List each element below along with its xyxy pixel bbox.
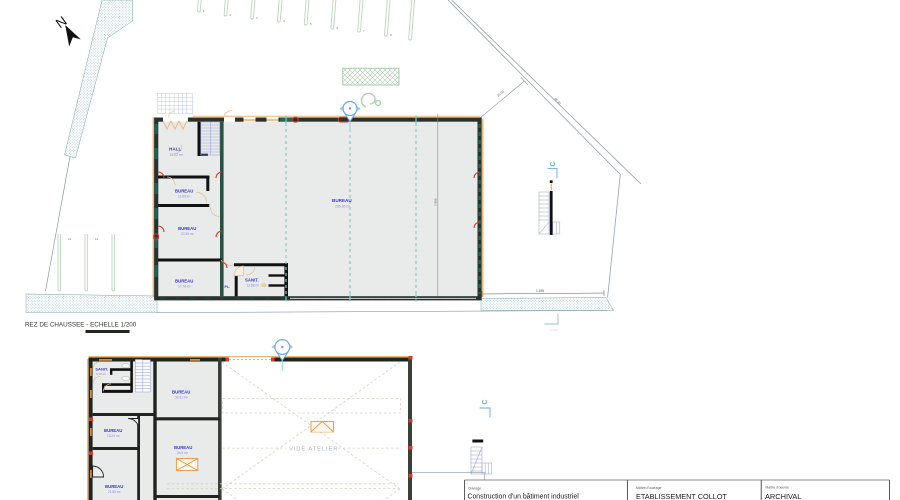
svg-text:19.22 m²: 19.22 m²: [170, 153, 184, 157]
svg-text:12: 12: [68, 237, 72, 241]
svg-text:PL.: PL.: [225, 285, 231, 289]
svg-text:ETABLISSEMENT COLLOT: ETABLISSEMENT COLLOT: [636, 492, 728, 500]
svg-text:1.195: 1.195: [536, 289, 544, 293]
svg-text:6.06 m²: 6.06 m²: [96, 372, 106, 376]
svg-text:12.88 m²: 12.88 m²: [247, 284, 260, 288]
svg-text:BUREAU: BUREAU: [175, 279, 193, 284]
svg-text:7.985: 7.985: [434, 198, 438, 206]
svg-text:Ouvrage: Ouvrage: [468, 487, 481, 491]
svg-text:235.36 m²: 235.36 m²: [335, 205, 351, 209]
svg-text:20.36 m²: 20.36 m²: [181, 232, 194, 236]
svg-text:VIDE ATELIER: VIDE ATELIER: [289, 447, 338, 453]
svg-text:11: 11: [95, 237, 98, 241]
svg-text:BUREAU: BUREAU: [104, 428, 122, 433]
svg-text:ARCHIVAL: ARCHIVAL: [765, 492, 801, 500]
svg-text:11.89 m²: 11.89 m²: [178, 195, 190, 199]
svg-text:21.85 m²: 21.85 m²: [108, 490, 121, 494]
svg-text:BUREAU: BUREAU: [172, 390, 190, 395]
svg-text:BUREAU: BUREAU: [105, 484, 123, 489]
svg-text:30.31 m²: 30.31 m²: [175, 396, 188, 400]
svg-text:BUREAU: BUREAU: [178, 226, 196, 231]
svg-text:1.125: 1.125: [550, 328, 558, 332]
svg-text:17.76 m²: 17.76 m²: [178, 285, 191, 289]
svg-text:SANIT.: SANIT.: [95, 367, 108, 372]
svg-text:C: C: [482, 399, 489, 404]
svg-text:13.24 m²: 13.24 m²: [107, 434, 120, 438]
svg-text:BUREAU: BUREAU: [175, 189, 193, 194]
svg-text:REZ DE CHAUSSEE - ECHELLE 1/20: REZ DE CHAUSSEE - ECHELLE 1/200: [25, 322, 137, 329]
svg-text:34.9 m²: 34.9 m²: [177, 451, 188, 455]
svg-text:HALL: HALL: [169, 147, 181, 152]
svg-text:BUREAU: BUREAU: [174, 445, 192, 450]
svg-text:C: C: [550, 161, 557, 166]
svg-text:Maître d'ouvrage: Maître d'ouvrage: [636, 486, 661, 490]
svg-text:SANIT.: SANIT.: [245, 278, 259, 283]
svg-text:Maître d'oeuvre: Maître d'oeuvre: [766, 486, 790, 490]
svg-text:BUREAU: BUREAU: [332, 198, 352, 203]
svg-text:Construction d'un bâtiment ind: Construction d'un bâtiment industriel: [468, 494, 580, 500]
